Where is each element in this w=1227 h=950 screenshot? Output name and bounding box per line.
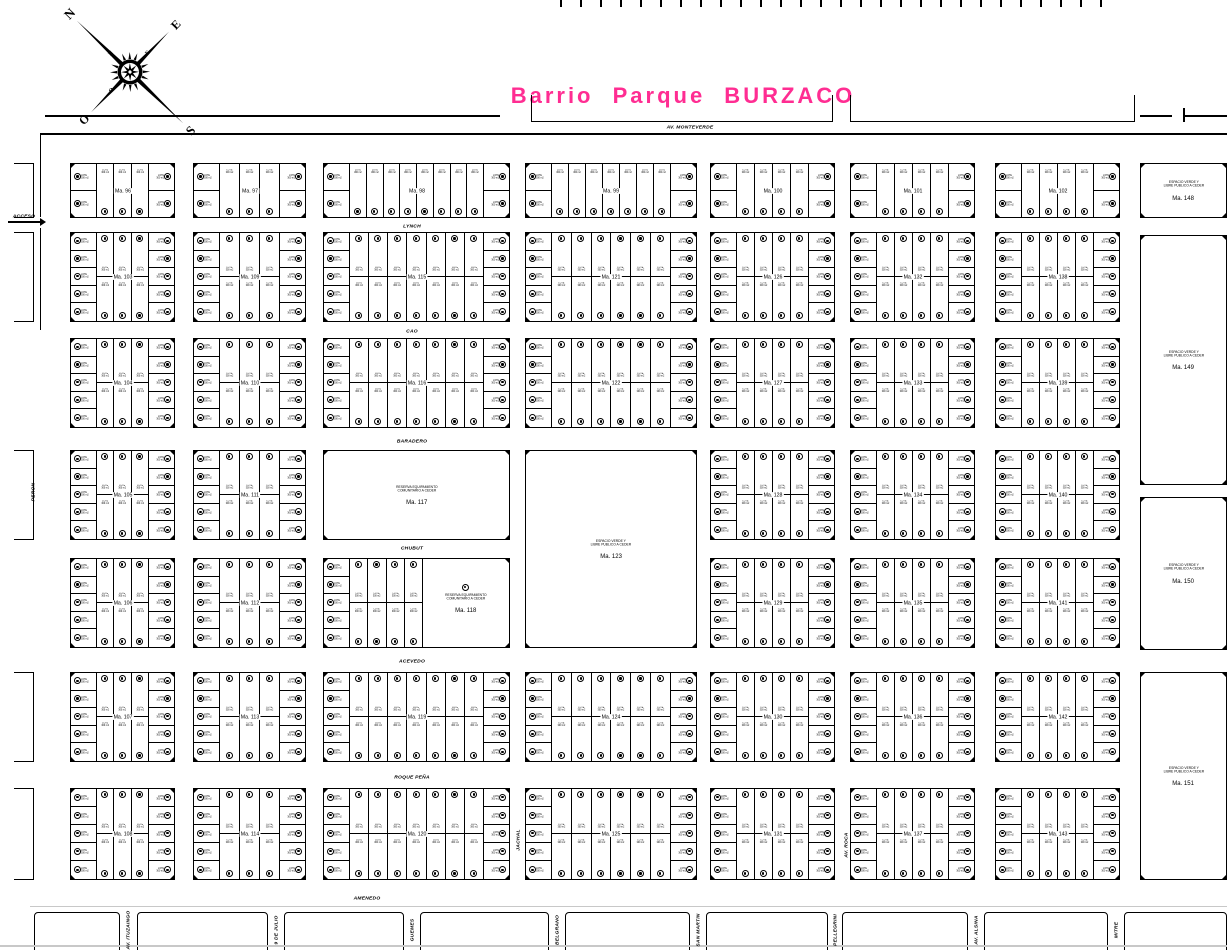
lot: LOTE300 m2: [809, 629, 834, 647]
lot-marker-icon: [1063, 418, 1070, 425]
lot-text-line: 300 m2: [861, 638, 869, 640]
lot-text: LOTE300 m2: [129, 722, 150, 727]
lot-marker-icon: [999, 473, 1006, 480]
lot-marker-icon: [714, 599, 721, 606]
manzana-label: Ma. 113: [239, 714, 260, 720]
lot-marker-icon: [499, 308, 506, 315]
lot-marker-icon: [327, 308, 334, 315]
lot-marker-icon: [246, 208, 253, 215]
lot-marker-icon: [451, 675, 458, 682]
lot-text-line: 300 m2: [287, 347, 295, 349]
lot-text-line: 300 m2: [721, 752, 729, 754]
lot-text: LOTE300 m2: [570, 706, 592, 711]
lot: LOTE300 m2: [149, 673, 174, 691]
street-label-vertical: SAN MARTIN: [695, 913, 701, 946]
lot-marker-icon: [295, 830, 302, 837]
lot-marker-icon: [637, 341, 644, 348]
lot-text: LOTE300 m2: [789, 722, 811, 727]
lot-text: LOTE300 m2: [258, 722, 280, 727]
north-edge-tick: [620, 0, 622, 7]
lot-marker-icon: [74, 237, 81, 244]
lot-text-line: 300 m2: [334, 382, 342, 384]
lot-marker-icon: [74, 581, 81, 588]
lot-marker-icon: [295, 414, 302, 421]
lot-text: LOTE300 m2: [721, 714, 729, 719]
lot: LOTE300 m2: [194, 577, 219, 595]
lot-text: LOTE300 m2: [861, 831, 869, 836]
lot-marker-icon: [637, 870, 644, 877]
lot-text-line: 300 m2: [816, 477, 824, 479]
manzana-label: Ma. 97: [240, 188, 258, 194]
block-half-top: LOTE300 m2LOTE300 m2LOTE300 m2: [97, 451, 148, 495]
reserve-text-line: LIBRE PUBLICO A CEDER: [1163, 770, 1203, 774]
lot-text-line: 300 m2: [156, 870, 164, 872]
lot: LOTE300 m2: [949, 374, 974, 392]
block-side-column: LOTE300 m2LOTE300 m2LOTE300 m2LOTE300 m2…: [948, 559, 974, 647]
lot-text-line: 300 m2: [258, 269, 280, 271]
lot-text-line: 300 m2: [816, 365, 824, 367]
lot-text: LOTE300 m2: [861, 714, 869, 719]
lot: LOTE300 m2: [465, 277, 483, 321]
lot-text-line: 300 m2: [129, 487, 150, 489]
lot-marker-icon: [101, 208, 108, 215]
lot-text: LOTE300 m2: [287, 274, 295, 279]
lot: LOTE300 m2: [132, 834, 148, 879]
lot-text: LOTE300 m2: [789, 388, 811, 393]
lot-text: LOTE300 m2: [678, 813, 686, 818]
lot-text: LOTE300 m2: [1101, 510, 1109, 515]
lot-marker-icon: [74, 848, 81, 855]
lot-marker-icon: [295, 473, 302, 480]
lot-text: LOTE300 m2: [204, 565, 212, 570]
lot: LOTE300 m2: [1076, 339, 1093, 382]
lot-text: LOTE300 m2: [1101, 679, 1109, 684]
lot: LOTE300 m2: [194, 691, 219, 709]
lot-text-line: 300 m2: [816, 312, 824, 314]
lot-marker-icon: [74, 455, 81, 462]
lot-text: LOTE300 m2: [334, 257, 342, 262]
lot-text-line: 300 m2: [156, 681, 164, 683]
lot-text-line: 300 m2: [156, 816, 164, 818]
lot-marker-icon: [686, 379, 693, 386]
lot-marker-icon: [246, 235, 253, 242]
lot: LOTE300 m2: [1076, 277, 1093, 321]
lot-text-line: 300 m2: [334, 716, 342, 718]
lot-text-line: 300 m2: [929, 171, 951, 173]
lot-text: LOTE300 m2: [156, 679, 164, 684]
lot: LOTE300 m2: [711, 807, 736, 825]
lot: LOTE300 m2: [526, 789, 551, 807]
lot-text-line: 300 m2: [156, 638, 164, 640]
lot-marker-icon: [295, 848, 302, 855]
lot-text: LOTE300 m2: [81, 274, 89, 279]
lot-marker-icon: [1081, 418, 1088, 425]
lot-marker-icon: [657, 870, 664, 877]
lot: LOTE300 m2: [194, 629, 219, 647]
block-side-column: LOTE300 m2LOTE300 m2LOTE300 m2LOTE300 m2…: [194, 233, 220, 321]
north-edge-tick: [1080, 0, 1082, 7]
lot-marker-icon: [74, 255, 81, 262]
lot-marker-icon: [327, 713, 334, 720]
lot-marker-icon: [558, 791, 565, 798]
lot-marker-icon: [824, 677, 831, 684]
lot-text: LOTE300 m2: [81, 636, 89, 641]
block-half-top: LOTE300 m2LOTE300 m2LOTE300 m2LOTE300 m2: [1022, 451, 1093, 495]
block-half-bottom: LOTE300 m2LOTE300 m2LOTE300 m2LOTE300 m2: [737, 834, 808, 879]
lot: LOTE300 m2: [446, 383, 465, 427]
lot-text: LOTE300 m2: [929, 608, 951, 613]
lot-marker-icon: [529, 173, 536, 180]
lot-text-line: 300 m2: [1074, 610, 1096, 612]
lot-text: LOTE300 m2: [334, 174, 342, 179]
lot: LOTE300 m2: [791, 339, 808, 382]
lot-text-line: 300 m2: [721, 477, 729, 479]
lot-marker-icon: [936, 638, 943, 645]
lot-text: LOTE300 m2: [816, 257, 824, 262]
lot: LOTE300 m2: [552, 834, 572, 879]
lot: LOTE300 m2: [194, 251, 219, 269]
lot-marker-icon: [900, 418, 907, 425]
lot-text: LOTE300 m2: [334, 600, 342, 605]
lot: LOTE300 m2: [71, 268, 96, 286]
lot-marker-icon: [854, 599, 861, 606]
lot-text-line: 300 m2: [861, 459, 869, 461]
lot: LOTE300 m2: [949, 612, 974, 630]
lot: LOTE300 m2: [851, 825, 876, 843]
lot-marker-icon: [964, 848, 971, 855]
lot-text: LOTE300 m2: [491, 398, 499, 403]
lot-text: LOTE300 m2: [491, 868, 499, 873]
lot: LOTE300 m2: [149, 469, 174, 487]
lot-text: LOTE300 m2: [956, 697, 964, 702]
lot-marker-icon: [266, 453, 273, 460]
lot-text: LOTE300 m2: [204, 795, 212, 800]
lot-marker-icon: [1027, 341, 1034, 348]
lot-marker-icon: [164, 616, 171, 623]
lot-text-line: 300 m2: [1006, 816, 1014, 818]
lot-marker-icon: [197, 343, 204, 350]
manzana-block: LOTE300 m2LOTE300 m2LOTE300 m2LOTE300 m2…: [70, 338, 175, 428]
lot: LOTE300 m2: [324, 164, 349, 191]
lot: LOTE300 m2: [711, 286, 736, 304]
block-corner-chamfer: [1140, 212, 1146, 218]
lot-marker-icon: [295, 361, 302, 368]
lot: LOTE300 m2: [71, 504, 96, 522]
lot-text-line: 300 m2: [204, 852, 212, 854]
lot-marker-icon: [824, 581, 831, 588]
lot-marker-icon: [714, 581, 721, 588]
lot: LOTE300 m2: [446, 834, 465, 879]
lot: LOTE300 m2: [484, 673, 509, 691]
lot-text: LOTE300 m2: [463, 282, 485, 287]
block-half-bottom: LOTE300 m2LOTE300 m2LOTE300 m2: [97, 834, 148, 879]
lot: LOTE300 m2: [324, 789, 349, 807]
lot-text-line: 300 m2: [491, 382, 499, 384]
lot-text: LOTE300 m2: [1074, 266, 1096, 271]
lot-marker-icon: [226, 638, 233, 645]
lot-marker-icon: [1027, 530, 1034, 537]
lot: LOTE300 m2: [149, 374, 174, 392]
west-street-bracket: [14, 163, 34, 218]
lot-marker-icon: [499, 677, 506, 684]
lot: LOTE300 m2: [280, 409, 305, 427]
lot-text-line: 300 m2: [204, 241, 212, 243]
lot-marker-icon: [295, 455, 302, 462]
lot-marker-icon: [529, 255, 536, 262]
lot: LOTE300 m2: [949, 629, 974, 647]
lot-marker-icon: [246, 638, 253, 645]
block-corner-chamfer: [1221, 644, 1227, 650]
lot-text: LOTE300 m2: [258, 500, 280, 505]
lot: LOTE300 m2: [1094, 594, 1119, 612]
lot: LOTE300 m2: [280, 469, 305, 487]
lot-text: LOTE300 m2: [678, 750, 686, 755]
lot-marker-icon: [617, 235, 624, 242]
lot-text: LOTE300 m2: [334, 750, 342, 755]
block-side-column: LOTE300 m2LOTE300 m2LOTE300 m2LOTE300 m2…: [148, 559, 174, 647]
lot: LOTE300 m2: [809, 861, 834, 879]
lot: LOTE300 m2: [484, 303, 509, 321]
block-corner-chamfer: [525, 450, 531, 456]
lot: LOTE300 m2: [809, 843, 834, 861]
lot: LOTE300 m2: [149, 286, 174, 304]
manzana-label: Ma. 116: [406, 380, 427, 386]
lot-marker-icon: [854, 361, 861, 368]
lot-marker-icon: [657, 791, 664, 798]
lot-text: LOTE300 m2: [1074, 372, 1096, 377]
lot: LOTE300 m2: [324, 286, 349, 304]
lot: LOTE300 m2: [851, 629, 876, 647]
lot-text: LOTE300 m2: [287, 679, 295, 684]
lot-text-line: 300 m2: [1006, 418, 1014, 420]
manzana-block: LOTE300 m2LOTE300 m2LOTE300 m2LOTE300 m2…: [850, 558, 975, 648]
lot: LOTE300 m2: [194, 392, 219, 410]
lot-text-line: 300 m2: [1006, 602, 1014, 604]
lot-text: LOTE300 m2: [816, 868, 824, 873]
lot-text-line: 300 m2: [861, 852, 869, 854]
lot: LOTE300 m2: [671, 708, 696, 726]
block-side-column: LOTE300 m2LOTE300 m2LOTE300 m2LOTE300 m2…: [996, 559, 1022, 647]
lot-text: LOTE300 m2: [570, 839, 592, 844]
lot: LOTE300 m2: [949, 691, 974, 709]
lot-marker-icon: [388, 208, 395, 215]
lot-text-line: 300 m2: [678, 681, 686, 683]
lot: LOTE300 m2: [809, 673, 834, 691]
lot-marker-icon: [558, 341, 565, 348]
lot-text: LOTE300 m2: [334, 636, 342, 641]
lot: LOTE300 m2: [651, 834, 670, 879]
north-edge-tick: [920, 0, 922, 7]
block-half-top: LOTE300 m2LOTE300 m2LOTE300 m2: [97, 789, 148, 834]
lot: LOTE300 m2: [996, 825, 1021, 843]
lot-marker-icon: [964, 526, 971, 533]
block-side-column: LOTE300 m2LOTE300 m2LOTE300 m2LOTE300 m2…: [71, 789, 97, 879]
lot-text-line: 300 m2: [536, 852, 544, 854]
lot: LOTE300 m2: [949, 559, 974, 577]
lot-text-line: 300 m2: [861, 259, 869, 261]
lot-marker-icon: [686, 308, 693, 315]
lot-text-line: 300 m2: [258, 390, 280, 392]
block-side-column: LOTE300 m2LOTE300 m2LOTE300 m2LOTE300 m2…: [1093, 451, 1119, 539]
lot: LOTE300 m2: [996, 191, 1021, 218]
lot: LOTE300 m2: [1094, 708, 1119, 726]
lot-text: LOTE300 m2: [956, 565, 964, 570]
lot-marker-icon: [355, 638, 362, 645]
lot: LOTE300 m2: [711, 861, 736, 879]
north-edge-tick: [840, 0, 842, 7]
lot-text-line: 300 m2: [861, 602, 869, 604]
lot-text: LOTE300 m2: [956, 831, 964, 836]
street-label-vertical: GUEMES: [409, 919, 415, 942]
lot-text: LOTE300 m2: [258, 169, 280, 174]
block-half-bottom: LOTE300 m2LOTE300 m2LOTE300 m2: [220, 603, 279, 647]
lot: LOTE300 m2: [194, 486, 219, 504]
lot: LOTE300 m2: [194, 451, 219, 469]
lot-text: LOTE300 m2: [861, 868, 869, 873]
lot-marker-icon: [964, 396, 971, 403]
lot-text-line: 300 m2: [156, 477, 164, 479]
lot-text-line: 300 m2: [204, 312, 212, 314]
lot-text-line: 300 m2: [491, 418, 499, 420]
lot-marker-icon: [824, 730, 831, 737]
lot-text: LOTE300 m2: [156, 345, 164, 350]
lot-marker-icon: [266, 752, 273, 759]
lot-text-line: 300 m2: [678, 276, 686, 278]
lot-marker-icon: [918, 638, 925, 645]
lot: LOTE300 m2: [407, 339, 426, 382]
lot-text-line: 300 m2: [956, 530, 964, 532]
lot-text-line: 300 m2: [1074, 487, 1096, 489]
lot: LOTE300 m2: [220, 339, 240, 382]
lot-marker-icon: [686, 255, 693, 262]
lot-marker-icon: [686, 173, 693, 180]
lot-text: LOTE300 m2: [156, 363, 164, 368]
lot: LOTE300 m2: [851, 559, 876, 577]
lot: LOTE300 m2: [526, 164, 551, 191]
lot-text: LOTE300 m2: [1074, 722, 1096, 727]
lot-marker-icon: [101, 638, 108, 645]
lot-marker-icon: [327, 396, 334, 403]
lot-text: LOTE300 m2: [156, 416, 164, 421]
lot-text-line: 300 m2: [536, 734, 544, 736]
lot: LOTE300 m2: [996, 726, 1021, 744]
lot-marker-icon: [1027, 208, 1034, 215]
lot-marker-icon: [226, 561, 233, 568]
lot-text: LOTE300 m2: [156, 475, 164, 480]
lot-marker-icon: [686, 677, 693, 684]
lot-marker-icon: [499, 379, 506, 386]
lot-text-line: 300 m2: [334, 241, 342, 243]
reserve-text: ESPACIO VERDE YLIBRE PUBLICO A CEDER: [1163, 766, 1203, 773]
lot-text-line: 300 m2: [550, 284, 572, 286]
manzana-block: LOTE300 m2LOTE300 m2LOTE300 m2LOTE300 m2…: [193, 558, 306, 648]
block-side-column: LOTE300 m2LOTE300 m2LOTE300 m2LOTE300 m2…: [948, 233, 974, 321]
lot: LOTE300 m2: [809, 409, 834, 427]
lot-text: LOTE300 m2: [649, 388, 671, 393]
manzana-label: Ma. 114: [239, 831, 260, 837]
lot-text: LOTE300 m2: [1101, 475, 1109, 480]
lot-marker-icon: [778, 561, 785, 568]
lot: LOTE300 m2: [240, 383, 260, 427]
lot: LOTE300 m2: [71, 357, 96, 375]
lot-marker-icon: [394, 870, 401, 877]
lot-text: LOTE300 m2: [258, 372, 280, 377]
lot: LOTE300 m2: [711, 825, 736, 843]
lot-text-line: 300 m2: [929, 502, 951, 504]
lot-marker-icon: [854, 491, 861, 498]
block-side-column: LOTE300 m2LOTE300 m2LOTE300 m2LOTE300 m2…: [324, 559, 350, 647]
lot-marker-icon: [999, 848, 1006, 855]
lot-marker-icon: [714, 830, 721, 837]
lot-text-line: 300 m2: [929, 595, 951, 597]
manzana-label: Ma. 111: [239, 492, 259, 498]
lot-text: LOTE300 m2: [1101, 416, 1109, 421]
lot-text-line: 300 m2: [81, 477, 89, 479]
lot: LOTE300 m2: [260, 383, 279, 427]
lot-text-line: 300 m2: [678, 365, 686, 367]
lot-text-line: 300 m2: [721, 834, 729, 836]
lot-text: LOTE300 m2: [956, 310, 964, 315]
reserve-text-line: LIBRE PUBLICO A CEDER: [1163, 185, 1203, 189]
lot-text-line: 300 m2: [678, 852, 686, 854]
lot-marker-icon: [74, 830, 81, 837]
lot-marker-icon: [119, 453, 126, 460]
lot-text-line: 300 m2: [956, 681, 964, 683]
lot-marker-icon: [1109, 473, 1116, 480]
lot-text: LOTE300 m2: [861, 583, 869, 588]
lot: LOTE300 m2: [791, 495, 808, 539]
lot-text-line: 300 m2: [861, 276, 869, 278]
lot: LOTE300 m2: [651, 277, 670, 321]
lot-text-line: 300 m2: [81, 567, 89, 569]
lot-text: LOTE300 m2: [156, 868, 164, 873]
lot: LOTE300 m2: [949, 339, 974, 357]
lot-marker-icon: [796, 418, 803, 425]
lot-marker-icon: [499, 396, 506, 403]
block-side-column: LOTE300 m2LOTE300 m2LOTE300 m2LOTE300 m2…: [996, 339, 1022, 427]
lot-marker-icon: [327, 379, 334, 386]
manzana-block: LOTE300 m2LOTE300 m2LOTE300 m2LOTE300 m2…: [193, 232, 306, 322]
lot-marker-icon: [373, 561, 380, 568]
lot-text: LOTE300 m2: [334, 239, 342, 244]
lot-marker-icon: [394, 752, 401, 759]
lot-text-line: 300 m2: [129, 502, 150, 504]
lot-marker-icon: [295, 273, 302, 280]
block-half-top: LOTE300 m2LOTE300 m2LOTE300 m2: [97, 233, 148, 277]
lot: LOTE300 m2: [671, 843, 696, 861]
lot-text-line: 300 m2: [81, 400, 89, 402]
lot-marker-icon: [964, 634, 971, 641]
lot-marker-icon: [999, 491, 1006, 498]
lot-marker-icon: [796, 453, 803, 460]
lot: LOTE300 m2: [671, 251, 696, 269]
bottom-separator-line: [0, 945, 1227, 947]
lot: LOTE300 m2: [427, 834, 446, 879]
lot: LOTE300 m2: [446, 277, 465, 321]
lot-text-line: 300 m2: [1074, 826, 1096, 828]
lot: LOTE300 m2: [809, 286, 834, 304]
lot-marker-icon: [432, 752, 439, 759]
lot-marker-icon: [499, 866, 506, 873]
lot-marker-icon: [499, 695, 506, 702]
street-label-vertical: PELLEGRINI: [832, 914, 838, 946]
manzana-block: LOTE300 m2LOTE300 m2LOTE300 m2LOTE300 m2…: [710, 558, 835, 648]
access-arrow-icon: [40, 218, 46, 226]
block-half-top: LOTE300 m2LOTE300 m2LOTE300 m2LOTE300 m2: [737, 451, 808, 495]
lot-marker-icon: [918, 208, 925, 215]
manzana-block: LOTE300 m2LOTE300 m2LOTE300 m2LOTE300 m2…: [850, 672, 975, 762]
lot-text: LOTE300 m2: [536, 310, 544, 315]
